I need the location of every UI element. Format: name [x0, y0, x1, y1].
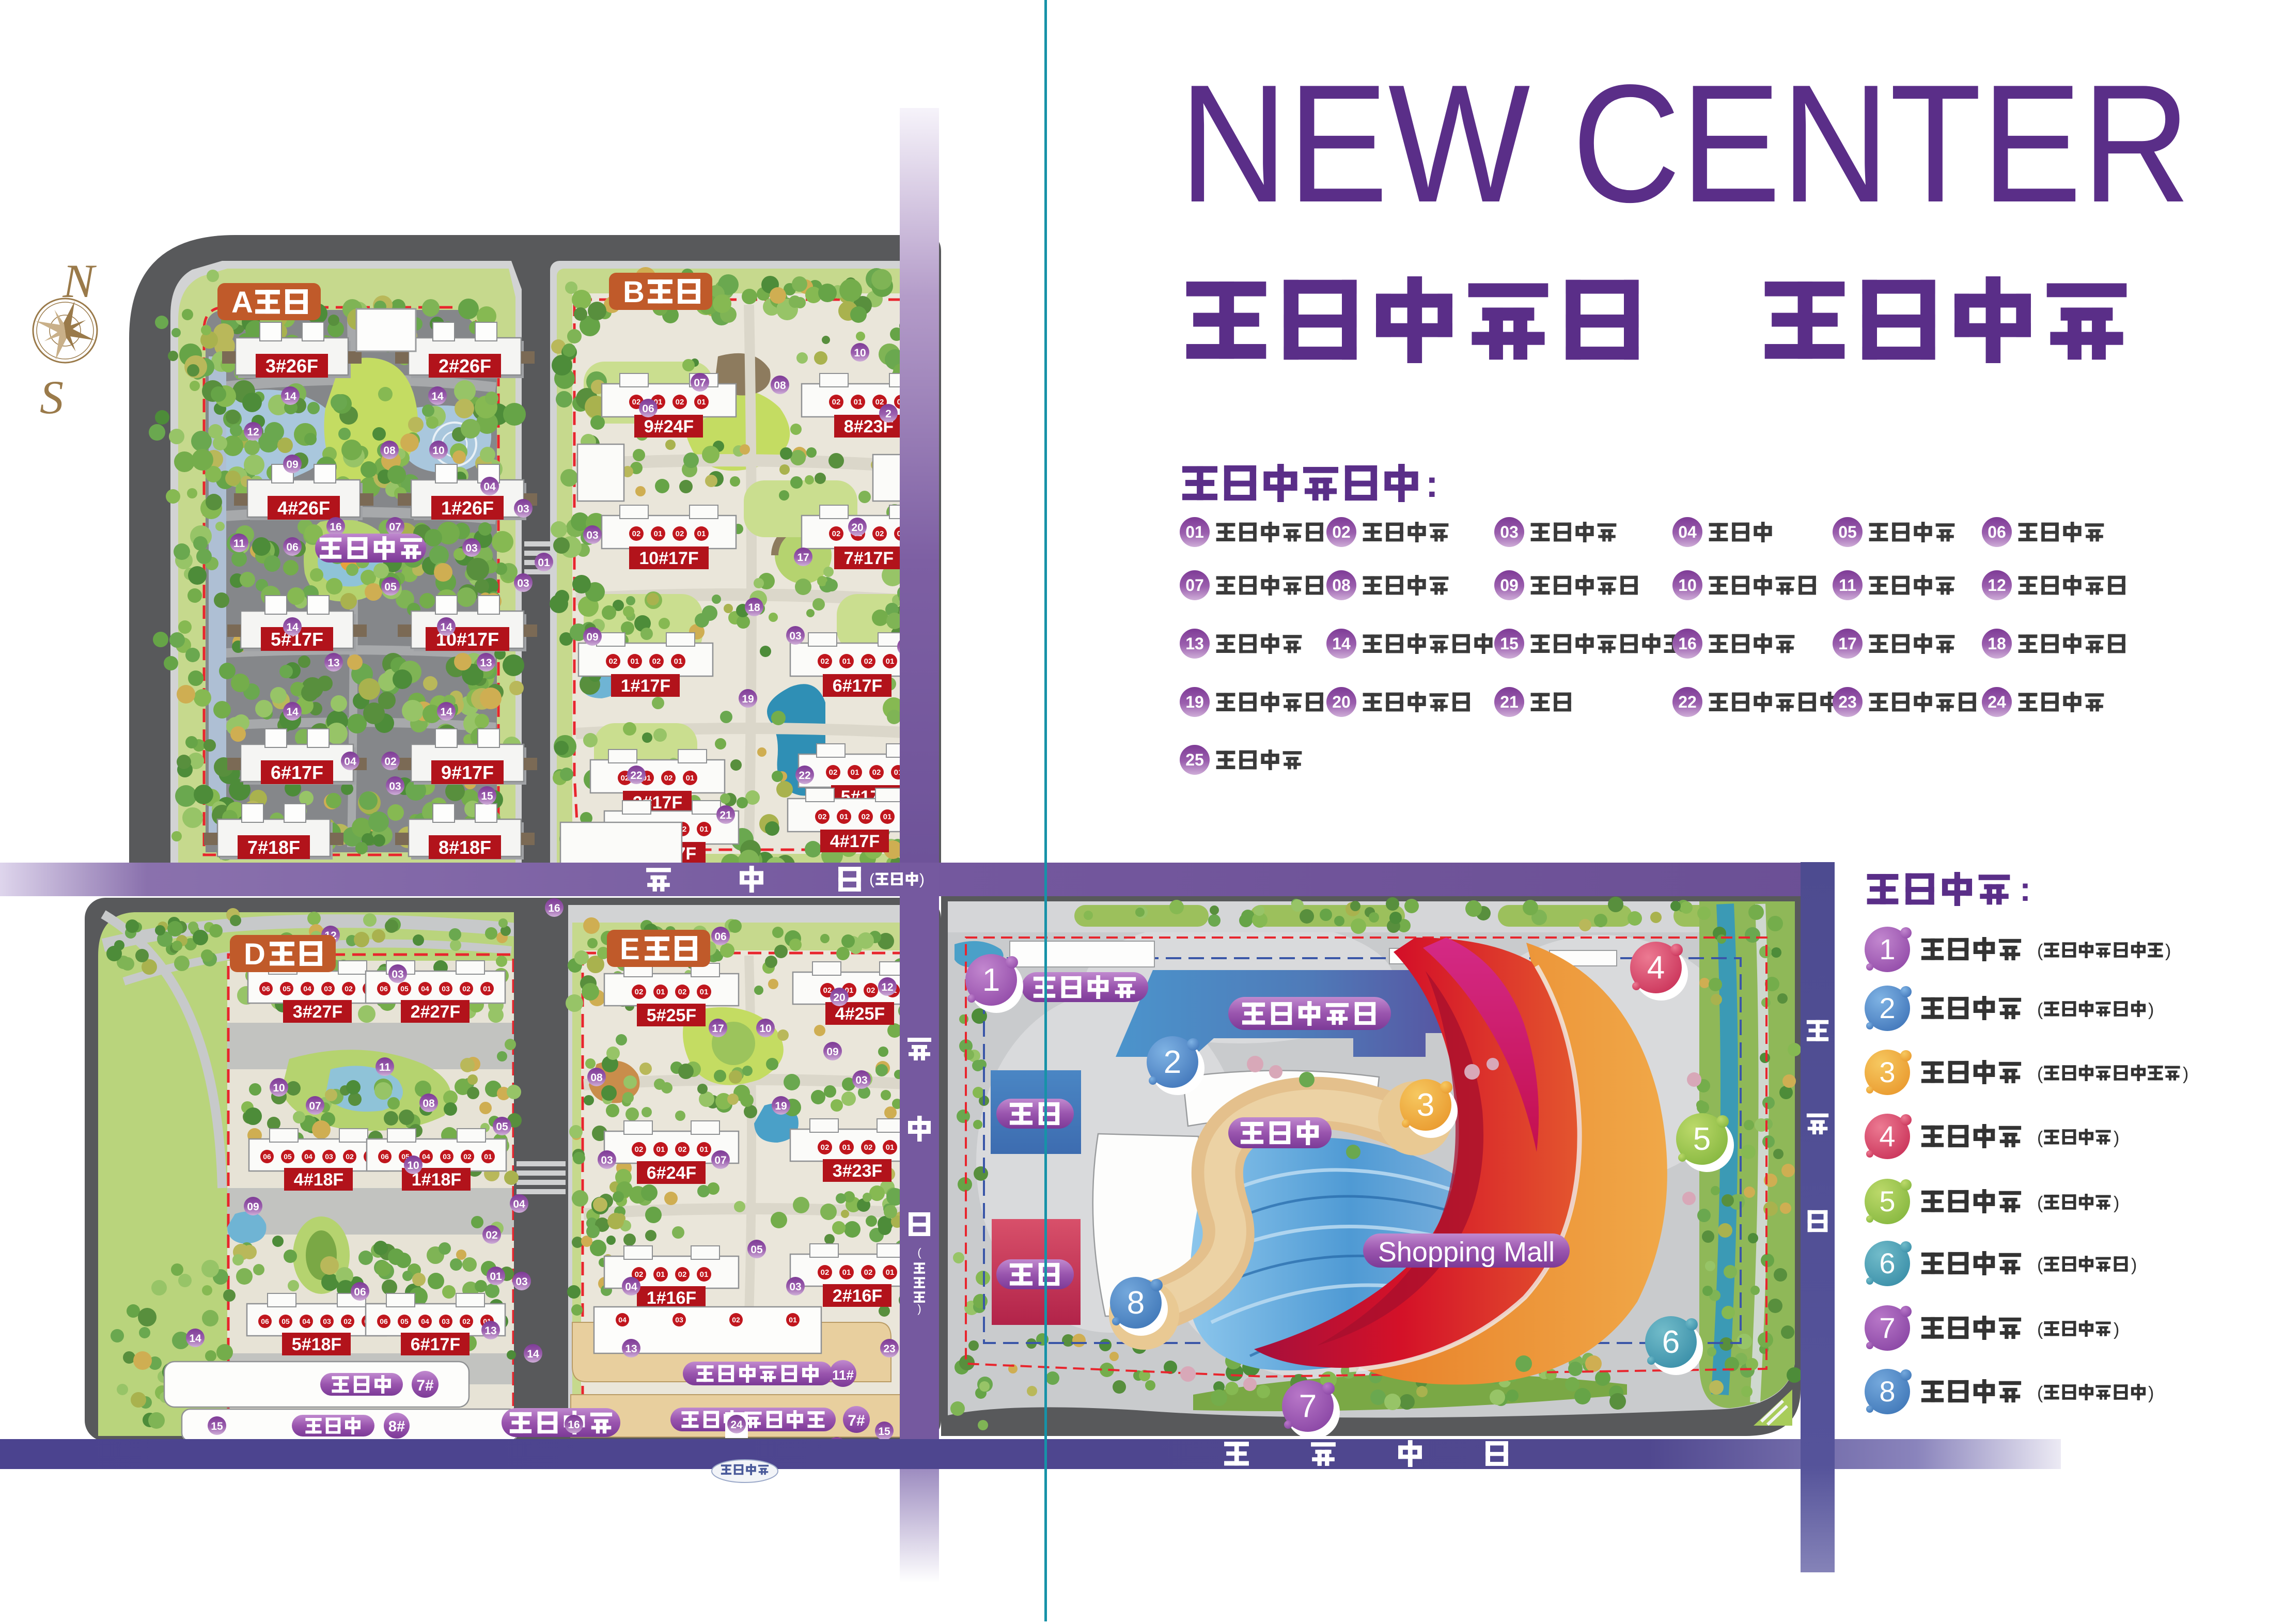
- svg-text:01: 01: [654, 529, 663, 538]
- svg-text:01: 01: [483, 985, 491, 993]
- svg-text:16: 16: [548, 902, 560, 914]
- svg-text:14: 14: [431, 391, 444, 402]
- svg-text:(: (: [2037, 1383, 2043, 1403]
- svg-text:19: 19: [1185, 693, 1204, 711]
- svg-text:05: 05: [281, 1317, 290, 1325]
- svg-text:5: 5: [1879, 1185, 1895, 1217]
- svg-text:11#: 11#: [832, 1367, 854, 1383]
- svg-text:08: 08: [423, 1098, 435, 1110]
- svg-text:02: 02: [732, 1316, 740, 1324]
- svg-text:1#16F: 1#16F: [647, 1288, 696, 1308]
- svg-text:06: 06: [380, 985, 388, 993]
- svg-text:): ): [917, 1302, 921, 1315]
- svg-text:04: 04: [421, 985, 429, 993]
- svg-text:04: 04: [625, 1281, 637, 1293]
- svg-text:): ): [2183, 1064, 2188, 1084]
- svg-text:): ): [2114, 1320, 2119, 1339]
- svg-text:01: 01: [854, 398, 863, 407]
- svg-text:4#25F: 4#25F: [835, 1004, 885, 1024]
- svg-text:3: 3: [1417, 1087, 1434, 1123]
- svg-text:02: 02: [821, 1268, 830, 1277]
- svg-text:09: 09: [586, 631, 598, 643]
- svg-text:02: 02: [635, 1270, 644, 1279]
- svg-text:14: 14: [1332, 634, 1351, 653]
- svg-text:05: 05: [400, 985, 409, 993]
- svg-text:02: 02: [343, 1317, 352, 1325]
- svg-text:(: (: [869, 871, 874, 888]
- svg-text:02: 02: [632, 398, 641, 407]
- svg-text:03: 03: [392, 969, 403, 980]
- svg-text:): ): [2114, 1128, 2119, 1148]
- svg-text:4: 4: [1879, 1120, 1895, 1152]
- svg-text:14: 14: [440, 706, 452, 718]
- svg-text:05: 05: [750, 1244, 763, 1256]
- svg-text:24: 24: [1988, 693, 2006, 711]
- svg-text:(: (: [2037, 1128, 2043, 1148]
- svg-text:13: 13: [480, 657, 492, 669]
- svg-text:8: 8: [1127, 1285, 1145, 1321]
- svg-text:03: 03: [442, 1317, 450, 1325]
- svg-text:06: 06: [261, 1317, 269, 1325]
- svg-text:16: 16: [568, 1419, 580, 1431]
- svg-text:1#17F: 1#17F: [621, 676, 670, 696]
- svg-text:14: 14: [286, 621, 299, 633]
- svg-text:08: 08: [590, 1072, 603, 1084]
- svg-text:6#17F: 6#17F: [271, 762, 323, 783]
- svg-text:06: 06: [642, 403, 654, 415]
- svg-text:): ): [2148, 1383, 2154, 1403]
- svg-text:2: 2: [1879, 992, 1895, 1024]
- svg-text:01: 01: [842, 1268, 851, 1277]
- svg-text:(: (: [917, 1246, 921, 1259]
- svg-text:03: 03: [1500, 523, 1519, 541]
- svg-text:10: 10: [854, 347, 866, 359]
- svg-text:01: 01: [490, 1271, 502, 1283]
- svg-text:08: 08: [1332, 576, 1351, 595]
- svg-text:02: 02: [676, 398, 684, 407]
- svg-text:04: 04: [1678, 523, 1697, 541]
- svg-text:N: N: [62, 255, 97, 307]
- svg-text:8#18F: 8#18F: [439, 837, 491, 858]
- svg-text:3: 3: [1879, 1056, 1895, 1088]
- svg-text:01: 01: [697, 398, 706, 407]
- svg-text:4: 4: [1647, 950, 1665, 986]
- svg-text:13: 13: [327, 657, 339, 669]
- svg-text:3#27F: 3#27F: [293, 1002, 342, 1022]
- svg-text:01: 01: [631, 657, 639, 666]
- svg-text:D: D: [244, 938, 265, 971]
- svg-text:09: 09: [826, 1046, 838, 1058]
- svg-text:03: 03: [855, 1074, 867, 1086]
- svg-text:09: 09: [1500, 576, 1519, 595]
- svg-text:04: 04: [304, 1152, 312, 1161]
- svg-text:02: 02: [872, 768, 881, 777]
- svg-text:02: 02: [635, 1145, 644, 1154]
- svg-text:06: 06: [286, 541, 298, 553]
- svg-text:15: 15: [211, 1420, 223, 1432]
- svg-text:3#23F: 3#23F: [833, 1161, 882, 1181]
- svg-text:02: 02: [875, 529, 884, 538]
- svg-text:(: (: [2037, 1064, 2043, 1084]
- svg-text:02: 02: [652, 657, 661, 666]
- svg-text:11: 11: [1839, 576, 1856, 595]
- svg-text:02: 02: [486, 1229, 497, 1241]
- svg-text:A: A: [231, 286, 253, 319]
- svg-text:(: (: [2037, 941, 2043, 961]
- svg-text:06: 06: [380, 1317, 388, 1325]
- svg-text:10: 10: [407, 1160, 419, 1172]
- svg-text:09: 09: [286, 459, 298, 471]
- svg-text:03: 03: [515, 1276, 527, 1288]
- svg-text:16: 16: [1678, 634, 1697, 653]
- svg-text:01: 01: [789, 1316, 797, 1324]
- svg-text:1: 1: [1879, 933, 1895, 965]
- svg-text:02: 02: [678, 1270, 687, 1279]
- svg-text:01: 01: [700, 1270, 709, 1279]
- svg-text:01: 01: [886, 1143, 895, 1152]
- svg-text:): ): [2131, 1255, 2137, 1275]
- svg-text:23: 23: [1838, 693, 1857, 711]
- svg-text:08: 08: [383, 445, 396, 457]
- svg-text:19: 19: [775, 1100, 787, 1112]
- svg-text:6#24F: 6#24F: [647, 1163, 696, 1183]
- svg-text:05: 05: [400, 1317, 409, 1325]
- svg-text:04: 04: [344, 756, 356, 768]
- svg-text:01: 01: [538, 557, 550, 569]
- svg-text:04: 04: [421, 1317, 429, 1325]
- svg-text:02: 02: [678, 1145, 687, 1154]
- svg-text:04: 04: [483, 481, 496, 493]
- svg-text:13: 13: [1185, 634, 1204, 653]
- svg-text:01: 01: [656, 1270, 665, 1279]
- svg-text:02: 02: [864, 1268, 873, 1277]
- svg-text:02: 02: [832, 529, 841, 538]
- svg-text:10: 10: [1678, 576, 1697, 595]
- svg-text:08: 08: [774, 380, 786, 392]
- svg-text:04: 04: [513, 1198, 525, 1210]
- svg-text::: :: [1426, 462, 1438, 505]
- svg-text:13: 13: [625, 1343, 637, 1355]
- svg-text:): ): [2114, 1193, 2119, 1213]
- svg-text:02: 02: [821, 1143, 830, 1152]
- svg-text:7#: 7#: [848, 1412, 865, 1429]
- svg-text:9#24F: 9#24F: [644, 417, 694, 436]
- svg-text:01: 01: [686, 774, 695, 783]
- svg-text:9#17F: 9#17F: [441, 762, 494, 783]
- svg-text:4#17F: 4#17F: [830, 832, 880, 851]
- svg-text:): ): [2148, 1000, 2154, 1020]
- svg-text:2#26F: 2#26F: [439, 355, 491, 377]
- svg-text:17: 17: [712, 1023, 724, 1035]
- svg-text:12: 12: [881, 981, 893, 993]
- svg-text:(: (: [2037, 1000, 2043, 1020]
- svg-text:10#17F: 10#17F: [639, 549, 698, 568]
- svg-text:7#18F: 7#18F: [247, 837, 300, 858]
- svg-text:03: 03: [443, 1152, 451, 1161]
- svg-text:5#25F: 5#25F: [647, 1006, 696, 1025]
- svg-text:): ): [2165, 941, 2171, 961]
- svg-text:18: 18: [1988, 634, 2006, 653]
- svg-text:02: 02: [862, 813, 870, 821]
- svg-text:04: 04: [422, 1152, 430, 1161]
- svg-text:4#18F: 4#18F: [294, 1170, 343, 1190]
- svg-text:20: 20: [1332, 693, 1351, 711]
- svg-text:02: 02: [823, 986, 832, 995]
- svg-text:7: 7: [1299, 1388, 1317, 1424]
- svg-text:02: 02: [664, 774, 673, 783]
- svg-text:02: 02: [462, 985, 471, 993]
- svg-text:06: 06: [262, 985, 270, 993]
- svg-text:04: 04: [618, 1316, 627, 1324]
- svg-text:7: 7: [1879, 1311, 1895, 1344]
- svg-text:03: 03: [324, 985, 332, 993]
- svg-text:2#27F: 2#27F: [411, 1002, 460, 1022]
- svg-text:1: 1: [982, 962, 1000, 998]
- svg-text:06: 06: [714, 931, 726, 943]
- svg-text:03: 03: [389, 780, 401, 792]
- svg-text:01: 01: [700, 1145, 709, 1154]
- svg-text:02: 02: [875, 398, 884, 407]
- svg-text:06: 06: [354, 1286, 366, 1298]
- svg-text:22: 22: [630, 770, 642, 782]
- svg-text:07: 07: [389, 521, 401, 533]
- svg-text:(: (: [2037, 1255, 2043, 1275]
- svg-text:): ): [919, 871, 925, 888]
- svg-text:01: 01: [700, 988, 709, 996]
- svg-text:02: 02: [864, 657, 873, 666]
- svg-text:22: 22: [1678, 693, 1697, 711]
- svg-text:S: S: [40, 371, 64, 424]
- svg-text:4#26F: 4#26F: [277, 497, 330, 519]
- svg-text:03: 03: [517, 577, 529, 589]
- svg-text:03: 03: [465, 542, 477, 554]
- svg-text:20: 20: [851, 522, 863, 534]
- svg-text:05: 05: [496, 1121, 508, 1133]
- svg-text:16: 16: [330, 521, 341, 533]
- svg-text:15: 15: [481, 790, 493, 802]
- svg-text:14: 14: [440, 621, 452, 633]
- svg-text:24: 24: [730, 1419, 743, 1431]
- svg-text:02: 02: [346, 1152, 354, 1161]
- svg-text:21: 21: [1500, 693, 1519, 711]
- svg-text:17: 17: [797, 552, 809, 564]
- svg-text:19: 19: [742, 693, 754, 705]
- svg-text:15: 15: [1500, 634, 1519, 653]
- svg-text:01: 01: [1185, 523, 1204, 541]
- svg-text:6: 6: [1879, 1247, 1895, 1279]
- svg-text:01: 01: [484, 1152, 492, 1161]
- svg-text:25: 25: [1185, 751, 1204, 769]
- svg-text:8#: 8#: [388, 1418, 405, 1435]
- svg-text:01: 01: [697, 529, 706, 538]
- svg-text:01: 01: [851, 768, 859, 777]
- svg-text:12: 12: [1988, 576, 2006, 595]
- svg-text:6: 6: [1662, 1324, 1680, 1360]
- svg-text:02: 02: [1332, 523, 1351, 541]
- svg-text:01: 01: [656, 988, 665, 996]
- svg-text:02: 02: [609, 657, 618, 666]
- svg-text:NEW CENTER: NEW CENTER: [1179, 50, 2191, 237]
- svg-text:05: 05: [284, 1152, 292, 1161]
- svg-text:(: (: [2037, 1193, 2043, 1213]
- svg-text:01: 01: [886, 1268, 895, 1277]
- svg-text:02: 02: [867, 986, 875, 995]
- svg-text:5: 5: [1693, 1121, 1711, 1157]
- svg-text:03: 03: [325, 1152, 333, 1161]
- svg-text:02: 02: [821, 657, 830, 666]
- svg-text:17: 17: [1838, 634, 1857, 653]
- svg-text:3#26F: 3#26F: [265, 355, 318, 377]
- svg-text:03: 03: [675, 1316, 683, 1324]
- svg-text:02: 02: [345, 985, 353, 993]
- svg-text:01: 01: [840, 813, 849, 821]
- svg-text:1#26F: 1#26F: [441, 497, 494, 519]
- svg-text:6#17F: 6#17F: [411, 1335, 460, 1354]
- svg-text:2: 2: [885, 408, 891, 420]
- svg-text:13: 13: [484, 1325, 496, 1337]
- svg-text:20: 20: [833, 992, 845, 1004]
- svg-text:06: 06: [1988, 523, 2006, 541]
- svg-text:05: 05: [1838, 523, 1857, 541]
- svg-text:04: 04: [302, 1317, 310, 1325]
- svg-text:02: 02: [632, 529, 641, 538]
- svg-text:14: 14: [286, 706, 299, 718]
- svg-text:7#17F: 7#17F: [844, 549, 894, 568]
- svg-text:01: 01: [674, 657, 683, 666]
- svg-text:5#18F: 5#18F: [292, 1335, 341, 1354]
- svg-text:05: 05: [384, 581, 397, 593]
- svg-text:14: 14: [284, 391, 296, 402]
- svg-text:09: 09: [247, 1201, 259, 1213]
- svg-text:05: 05: [283, 985, 291, 993]
- svg-text:10: 10: [759, 1023, 771, 1035]
- svg-text:03: 03: [789, 1281, 801, 1293]
- svg-text:07: 07: [714, 1154, 726, 1166]
- svg-text:07: 07: [309, 1100, 321, 1112]
- svg-text:10: 10: [273, 1082, 285, 1094]
- svg-text:01: 01: [842, 657, 851, 666]
- svg-text:11: 11: [379, 1061, 391, 1073]
- svg-text:(: (: [2037, 1320, 2043, 1339]
- svg-text:15: 15: [878, 1426, 890, 1438]
- svg-text:07: 07: [1185, 576, 1204, 595]
- svg-text:02: 02: [829, 768, 838, 777]
- svg-text:06: 06: [381, 1152, 389, 1161]
- svg-text:07: 07: [694, 377, 706, 389]
- svg-text:06: 06: [263, 1152, 271, 1161]
- svg-text:04: 04: [303, 985, 311, 993]
- svg-text:02: 02: [463, 1152, 472, 1161]
- svg-text:02: 02: [384, 756, 396, 768]
- svg-text:14: 14: [527, 1348, 539, 1360]
- svg-text:18: 18: [748, 602, 760, 614]
- svg-text:B: B: [623, 275, 645, 309]
- svg-text:7#: 7#: [416, 1377, 434, 1394]
- svg-text:03: 03: [517, 503, 529, 515]
- svg-text:02: 02: [864, 1143, 873, 1152]
- svg-text:1#18F: 1#18F: [412, 1170, 461, 1190]
- svg-text:23: 23: [883, 1343, 895, 1355]
- svg-text:01: 01: [883, 813, 892, 821]
- svg-text:02: 02: [832, 398, 841, 407]
- svg-text:03: 03: [442, 985, 450, 993]
- svg-text:02: 02: [678, 988, 687, 996]
- svg-text:03: 03: [601, 1154, 613, 1166]
- svg-text:8: 8: [1879, 1375, 1895, 1408]
- svg-text::: :: [2020, 870, 2031, 908]
- svg-text:03: 03: [789, 630, 801, 642]
- svg-text:21: 21: [719, 809, 732, 821]
- svg-text:02: 02: [635, 988, 644, 996]
- svg-text:02: 02: [462, 1317, 471, 1325]
- svg-text:14: 14: [189, 1333, 201, 1345]
- svg-text:E: E: [620, 932, 640, 966]
- svg-text:Shopping Mall: Shopping Mall: [1378, 1237, 1555, 1268]
- svg-text:01: 01: [656, 1145, 665, 1154]
- svg-text:01: 01: [886, 657, 895, 666]
- svg-text:02: 02: [676, 529, 684, 538]
- svg-text:11: 11: [233, 538, 245, 550]
- svg-text:2#16F: 2#16F: [833, 1286, 882, 1306]
- svg-text:6#17F: 6#17F: [833, 676, 882, 696]
- svg-text:22: 22: [799, 770, 810, 782]
- svg-text:10: 10: [432, 445, 444, 457]
- svg-text:01: 01: [842, 1143, 851, 1152]
- svg-text:02: 02: [818, 813, 827, 821]
- svg-text:03: 03: [323, 1317, 331, 1325]
- svg-text:12: 12: [247, 426, 259, 438]
- svg-text:01: 01: [700, 825, 709, 834]
- svg-text:2: 2: [1164, 1044, 1181, 1080]
- svg-text:03: 03: [586, 529, 598, 541]
